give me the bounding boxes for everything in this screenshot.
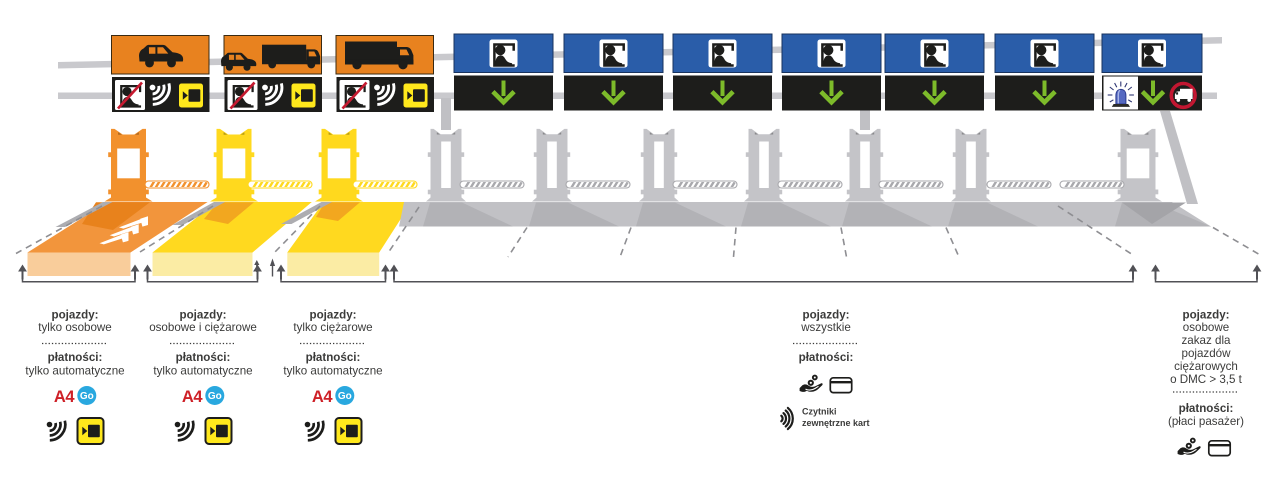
svg-text:pojazdów: pojazdów: [1182, 347, 1232, 360]
svg-text:zewnętrzne kart: zewnętrzne kart: [802, 418, 870, 428]
svg-text:płatności:: płatności:: [176, 351, 231, 364]
svg-text:tylko automatyczne: tylko automatyczne: [283, 365, 382, 378]
svg-text:o DMC > 3,5 t: o DMC > 3,5 t: [1170, 373, 1243, 386]
svg-text:tylko ciężarowe: tylko ciężarowe: [293, 321, 372, 334]
svg-text:pojazdy:: pojazdy:: [802, 309, 849, 322]
svg-text:zakaz dla: zakaz dla: [1182, 334, 1232, 347]
svg-text:tylko automatyczne: tylko automatyczne: [25, 365, 124, 378]
svg-text:pojazdy:: pojazdy:: [1182, 309, 1229, 322]
svg-text:pojazdy:: pojazdy:: [309, 309, 356, 322]
svg-text:płatności:: płatności:: [1179, 402, 1234, 415]
svg-text:tylko automatyczne: tylko automatyczne: [153, 365, 252, 378]
svg-text:(płaci pasażer): (płaci pasażer): [1168, 415, 1244, 428]
svg-text:pojazdy:: pojazdy:: [179, 309, 226, 322]
svg-text:osobowe: osobowe: [1183, 321, 1229, 334]
svg-text:płatności:: płatności:: [306, 351, 361, 364]
svg-text:Czytniki: Czytniki: [802, 407, 837, 417]
svg-text:płatności:: płatności:: [799, 351, 854, 364]
svg-text:ciężarowych: ciężarowych: [1174, 360, 1238, 373]
svg-text:płatności:: płatności:: [48, 351, 103, 364]
svg-text:osobowe i ciężarowe: osobowe i ciężarowe: [149, 321, 257, 334]
svg-text:pojazdy:: pojazdy:: [51, 309, 98, 322]
svg-text:tylko osobowe: tylko osobowe: [38, 321, 111, 334]
svg-text:wszystkie: wszystkie: [800, 321, 851, 334]
